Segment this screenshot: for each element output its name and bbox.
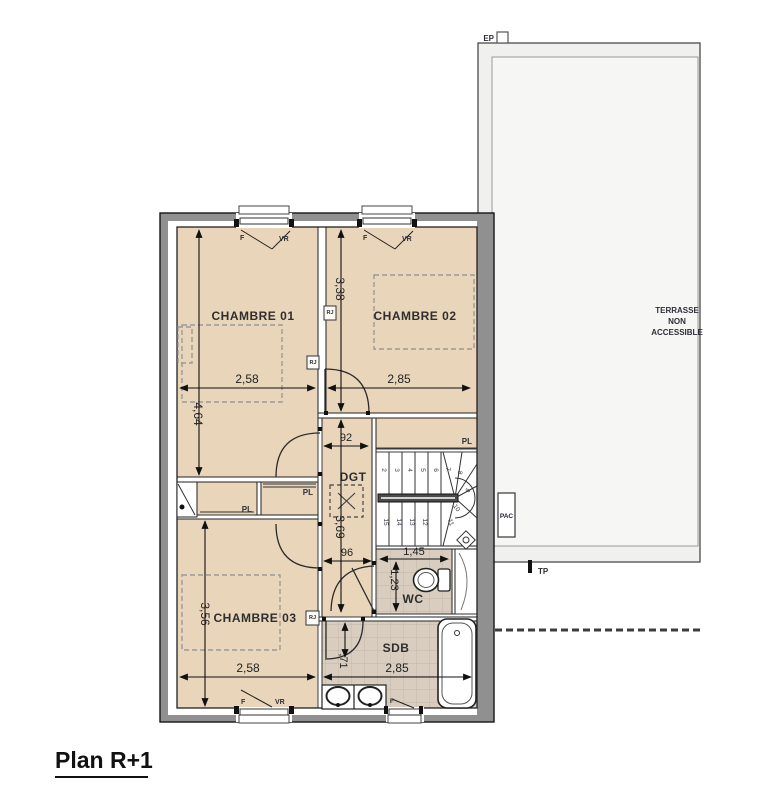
window-f-label: F bbox=[240, 235, 245, 242]
floor-plan-page: TERRASSE NON ACCESSIBLE EP TP bbox=[0, 0, 774, 800]
terrace-label-line1: TERRASSE bbox=[655, 306, 699, 315]
ep-downpipe-symbol bbox=[497, 32, 508, 43]
faucet-left bbox=[336, 703, 340, 707]
step-number: 7 bbox=[444, 467, 451, 471]
dim-dgt-depth: 3,69 bbox=[333, 515, 347, 539]
window-vr-label: VR bbox=[402, 236, 412, 243]
window-vr-label: VR bbox=[275, 699, 285, 706]
dim-chambre3-depth: 3,56 bbox=[198, 602, 212, 626]
page-title: Plan R+1 bbox=[55, 747, 153, 773]
pac-label: PAC bbox=[500, 513, 514, 520]
window-glazing bbox=[240, 709, 288, 715]
window-glazing bbox=[389, 709, 421, 715]
step-number: 12 bbox=[421, 518, 428, 526]
dim-wc-depth: 1,23 bbox=[388, 569, 400, 590]
window-vr-label: VR bbox=[279, 236, 289, 243]
wc-label: WC bbox=[403, 592, 424, 606]
closet-a-label: PL bbox=[242, 505, 252, 514]
step-number: 6 bbox=[432, 468, 439, 472]
partition-corridor-left-c bbox=[318, 568, 322, 617]
step-number: 4 bbox=[406, 468, 413, 472]
dim-chambre3-width: 2,58 bbox=[236, 661, 260, 675]
window-glazing bbox=[363, 218, 411, 224]
window-jamb bbox=[419, 706, 423, 714]
terrace: TERRASSE NON ACCESSIBLE EP TP bbox=[478, 32, 703, 630]
sdb-label: SDB bbox=[383, 641, 410, 655]
toilet-cistern bbox=[438, 569, 450, 591]
rj-socket-label: RJ bbox=[309, 615, 316, 621]
dim-sdb-width: 2,85 bbox=[385, 661, 409, 675]
window-sill bbox=[239, 715, 289, 723]
tp-symbol bbox=[528, 560, 532, 573]
pac-unit: PAC bbox=[498, 493, 515, 537]
partition-closets-ch3 bbox=[177, 515, 318, 519]
step-number: 13 bbox=[408, 518, 415, 526]
room-chambre1 bbox=[177, 227, 318, 479]
chambre2-label: CHAMBRE 02 bbox=[373, 309, 456, 323]
washbasin-left bbox=[327, 687, 350, 705]
step-number: 5 bbox=[419, 468, 426, 472]
ep-label: EP bbox=[483, 34, 494, 43]
toilet-bowl bbox=[414, 569, 439, 592]
washbasin-right bbox=[359, 687, 382, 705]
dim-chambre2-depth: 3,38 bbox=[333, 277, 347, 301]
window-sill bbox=[239, 206, 289, 214]
partition-stairs-wc bbox=[376, 546, 477, 549]
dim-wc-width: 1,45 bbox=[403, 546, 424, 558]
closets-band: PL PL bbox=[177, 482, 318, 517]
chambre1-label: CHAMBRE 01 bbox=[211, 309, 294, 323]
step-number: 2 bbox=[380, 468, 387, 472]
partition-ch1-closets bbox=[177, 477, 318, 482]
tp-label: TP bbox=[538, 567, 549, 576]
window-jamb bbox=[234, 219, 239, 227]
rj-socket-label: RJ bbox=[309, 360, 316, 366]
step-number: 14 bbox=[395, 518, 402, 526]
dgt-label: DGT bbox=[340, 470, 367, 484]
window-jamb bbox=[357, 219, 362, 227]
step-number: 3 bbox=[393, 468, 400, 472]
dim-chambre1-depth: 4,64 bbox=[191, 402, 205, 426]
duct-dot bbox=[180, 505, 185, 510]
title-block: Plan R+1 bbox=[55, 747, 153, 777]
terrace-inner-slab bbox=[492, 57, 698, 546]
partition-wc-cabinet bbox=[452, 549, 455, 614]
window-sill bbox=[388, 715, 421, 723]
window-jamb bbox=[289, 706, 294, 714]
wc-side-cabinet bbox=[455, 549, 477, 614]
dim-chambre2-width: 2,85 bbox=[387, 372, 411, 386]
faucet-right bbox=[368, 703, 372, 707]
window-f-label: F bbox=[390, 699, 394, 705]
window-glazing bbox=[240, 218, 288, 224]
closet-b-label: PL bbox=[303, 488, 313, 497]
dim-dgt-width: 92 bbox=[340, 432, 352, 444]
partition-dgt-stairs bbox=[372, 418, 376, 563]
rj-socket-label: RJ bbox=[326, 310, 333, 316]
window-jamb bbox=[384, 706, 388, 714]
partition-ch2-bottom bbox=[318, 413, 477, 418]
dim-chambre1-width: 2,58 bbox=[235, 372, 259, 386]
closet-stairs-label: PL bbox=[462, 437, 472, 446]
dim-sdb-door-width: ,71 bbox=[337, 653, 349, 668]
chambre3-label: CHAMBRE 03 bbox=[213, 611, 296, 625]
terrace-label-line3: ACCESSIBLE bbox=[651, 328, 703, 337]
step-number: 15 bbox=[382, 518, 389, 526]
dim-dgt-width-lower: 96 bbox=[341, 547, 353, 559]
bathtub bbox=[438, 619, 476, 708]
window-f-label: F bbox=[241, 699, 246, 706]
window-jamb bbox=[289, 219, 294, 227]
window-jamb bbox=[234, 706, 239, 714]
floor-plan-drawing: TERRASSE NON ACCESSIBLE EP TP bbox=[0, 0, 774, 800]
window-f-label: F bbox=[363, 235, 368, 242]
terrace-label-line2: NON bbox=[668, 317, 686, 326]
window-jamb bbox=[412, 219, 417, 227]
partition-corridor-left-b bbox=[318, 474, 322, 524]
window-sill bbox=[362, 206, 412, 214]
